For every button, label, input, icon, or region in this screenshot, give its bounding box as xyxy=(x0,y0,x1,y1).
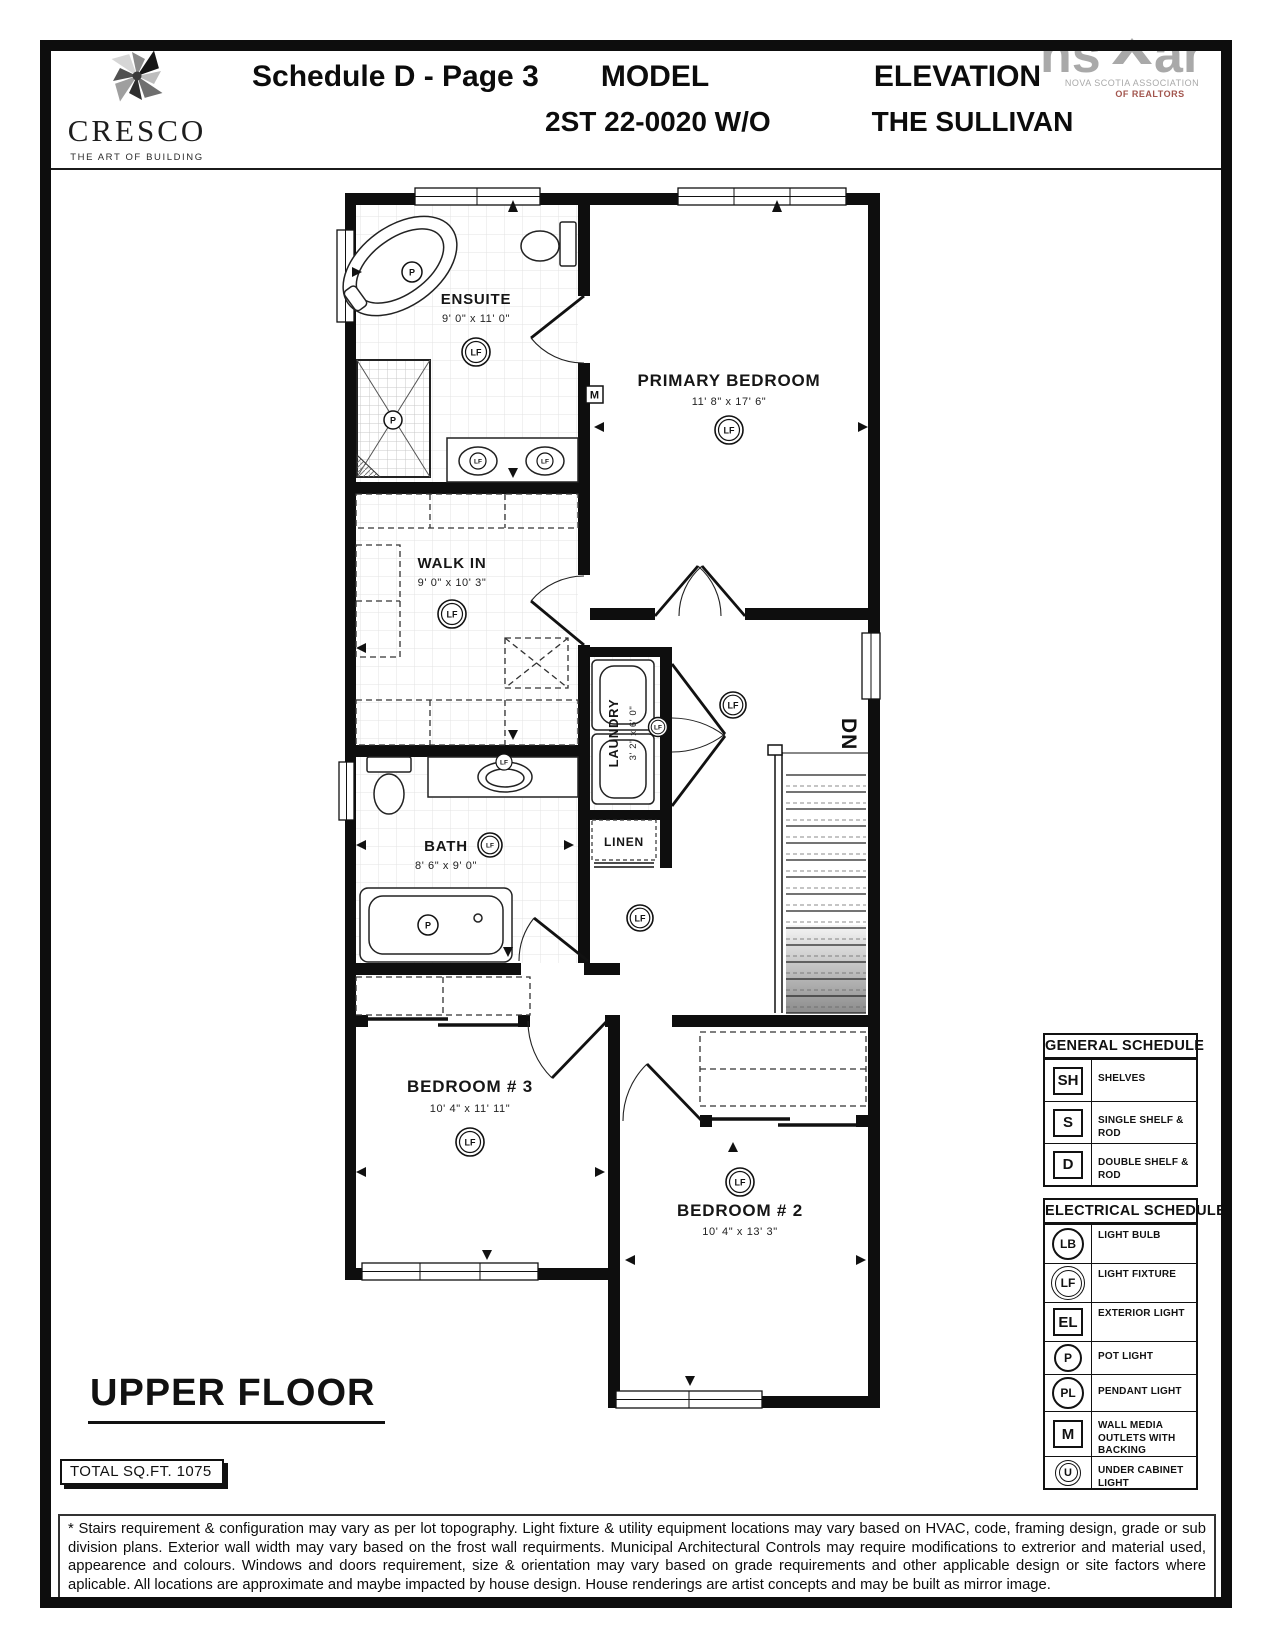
room-label-bath: BATH xyxy=(424,838,468,855)
schedule-row: S SINGLE SHELF & ROD xyxy=(1045,1101,1196,1143)
room-label-linen: LINEN xyxy=(604,835,644,849)
svg-text:11' 8" x 17' 6": 11' 8" x 17' 6" xyxy=(692,396,767,408)
room-label-laundry: LAUNDRY xyxy=(606,699,621,768)
svg-text:P: P xyxy=(425,921,431,931)
schedule-row: U UNDER CABINET LIGHT xyxy=(1045,1456,1196,1488)
under-cabinet-light-symbol: U xyxy=(1055,1460,1081,1486)
electrical-schedule: ELECTRICAL SCHEDULE LB LIGHT BULB LF LIG… xyxy=(1043,1198,1198,1490)
nsar-org-line1: NOVA SCOTIA ASSOCIATION xyxy=(1065,78,1199,88)
electrical-schedule-title: ELECTRICAL SCHEDULE xyxy=(1045,1200,1196,1224)
total-sqft-badge: TOTAL SQ.FT. 1075 xyxy=(60,1459,224,1485)
svg-text:LF: LF xyxy=(724,426,735,436)
shelves-symbol: SH xyxy=(1053,1067,1083,1095)
svg-text:LF: LF xyxy=(486,843,494,850)
light-fixture-symbol: LF xyxy=(438,600,466,628)
media-outlet-symbol: M xyxy=(1053,1420,1083,1448)
svg-text:LF: LF xyxy=(471,348,482,358)
pot-light-symbol: P xyxy=(402,262,422,282)
svg-text:LF: LF xyxy=(465,1138,476,1148)
svg-text:LF: LF xyxy=(654,725,662,732)
general-schedule: GENERAL SCHEDULE SH SHELVES S SINGLE SHE… xyxy=(1043,1033,1198,1187)
light-fixture-symbol: LF xyxy=(720,692,746,718)
stairs-down-label: DN xyxy=(837,718,860,750)
schedule-row: LB LIGHT BULB xyxy=(1045,1224,1196,1263)
room-label-bedroom-2: BEDROOM # 2 xyxy=(677,1201,803,1220)
nsar-house-icon xyxy=(1112,38,1152,64)
svg-text:P: P xyxy=(390,416,396,426)
nsar-org-line2: OF REALTORS xyxy=(1115,89,1184,99)
svg-text:LF: LF xyxy=(735,1178,746,1188)
schedule-title: Schedule D - Page 3 xyxy=(252,60,539,94)
elevation-value: THE SULLIVAN xyxy=(855,106,1090,138)
svg-text:10' 4" x 11' 11": 10' 4" x 11' 11" xyxy=(430,1103,511,1115)
svg-text:3' 2" x 6' 0": 3' 2" x 6' 0" xyxy=(628,706,639,761)
schedule-row: SH SHELVES xyxy=(1045,1059,1196,1101)
disclaimer-text: * Stairs requirement & configuration may… xyxy=(58,1514,1216,1601)
room-label-ensuite: ENSUITE xyxy=(441,291,512,308)
model-value: 2ST 22-0020 W/O xyxy=(545,106,765,138)
svg-text:8' 6" x 9' 0": 8' 6" x 9' 0" xyxy=(415,860,477,872)
media-outlet-symbol: M xyxy=(586,386,603,403)
svg-text:10' 4" x 13' 3": 10' 4" x 13' 3" xyxy=(702,1226,777,1238)
svg-text:LF: LF xyxy=(541,459,549,466)
staircase: DN xyxy=(768,718,868,1013)
toilet-bowl-icon xyxy=(374,774,404,814)
schedule-row: P POT LIGHT xyxy=(1045,1341,1196,1374)
toilet-bowl-icon xyxy=(521,231,559,261)
light-bulb-symbol: LB xyxy=(1052,1228,1084,1260)
svg-text:LF: LF xyxy=(474,459,482,466)
nsar-logo-ar: ar xyxy=(1154,26,1203,84)
light-fixture-symbol: LF xyxy=(1051,1266,1085,1300)
toilet-tank-icon xyxy=(367,757,411,772)
single-shelf-symbol: S xyxy=(1053,1109,1083,1137)
floorplan-sheet: ns ar NOVA SCOTIA ASSOCIATION OF REALTOR… xyxy=(0,0,1275,1650)
pot-light-symbol: P xyxy=(384,411,402,429)
svg-text:LF: LF xyxy=(728,701,739,711)
svg-text:M: M xyxy=(590,390,599,402)
light-fixture-symbol: LF xyxy=(715,416,743,444)
svg-text:LF: LF xyxy=(500,760,508,767)
room-label-primary-bedroom: PRIMARY BEDROOM xyxy=(638,371,821,390)
svg-text:P: P xyxy=(409,268,415,278)
exterior-light-symbol: EL xyxy=(1053,1308,1083,1336)
pot-light-symbol: P xyxy=(418,915,438,935)
floor-plan: DN xyxy=(300,175,900,1425)
svg-text:LF: LF xyxy=(635,914,646,924)
model-label: MODEL xyxy=(560,60,750,94)
cresco-tagline: THE ART OF BUILDING xyxy=(48,152,226,163)
light-fixture-symbol: LF xyxy=(726,1168,754,1196)
elevation-label: ELEVATION xyxy=(855,60,1060,94)
pot-light-symbol: P xyxy=(1054,1344,1082,1372)
schedule-row: LF LIGHT FIXTURE xyxy=(1045,1263,1196,1302)
pendant-light-symbol: PL xyxy=(1052,1377,1084,1409)
light-fixture-symbol: LF xyxy=(649,718,668,737)
schedule-row: EL EXTERIOR LIGHT xyxy=(1045,1302,1196,1341)
cresco-name: CRESCO xyxy=(48,113,226,149)
schedule-row: M WALL MEDIA OUTLETS WITH BACKING xyxy=(1045,1411,1196,1456)
cresco-pinwheel-icon xyxy=(104,44,170,106)
light-fixture-symbol: LF xyxy=(456,1128,484,1156)
light-fixture-symbol: LF xyxy=(478,833,502,857)
schedule-row: D DOUBLE SHELF & ROD xyxy=(1045,1143,1196,1185)
room-label-walk-in: WALK IN xyxy=(418,555,487,572)
light-fixture-symbol: LF xyxy=(462,338,490,366)
floor-title: UPPER FLOOR xyxy=(88,1372,385,1424)
svg-text:9' 0" x 10' 3": 9' 0" x 10' 3" xyxy=(418,577,487,589)
cresco-logo: CRESCO THE ART OF BUILDING xyxy=(48,44,226,163)
svg-text:9' 0" x 11' 0": 9' 0" x 11' 0" xyxy=(442,313,510,325)
svg-text:LF: LF xyxy=(447,610,458,620)
header-divider xyxy=(51,168,1223,170)
light-fixture-symbol: LF xyxy=(627,905,653,931)
schedule-row: PL PENDANT LIGHT xyxy=(1045,1374,1196,1411)
toilet-tank-icon xyxy=(560,222,576,266)
double-shelf-symbol: D xyxy=(1053,1151,1083,1179)
general-schedule-title: GENERAL SCHEDULE xyxy=(1045,1035,1196,1059)
room-label-bedroom-3: BEDROOM # 3 xyxy=(407,1077,533,1096)
